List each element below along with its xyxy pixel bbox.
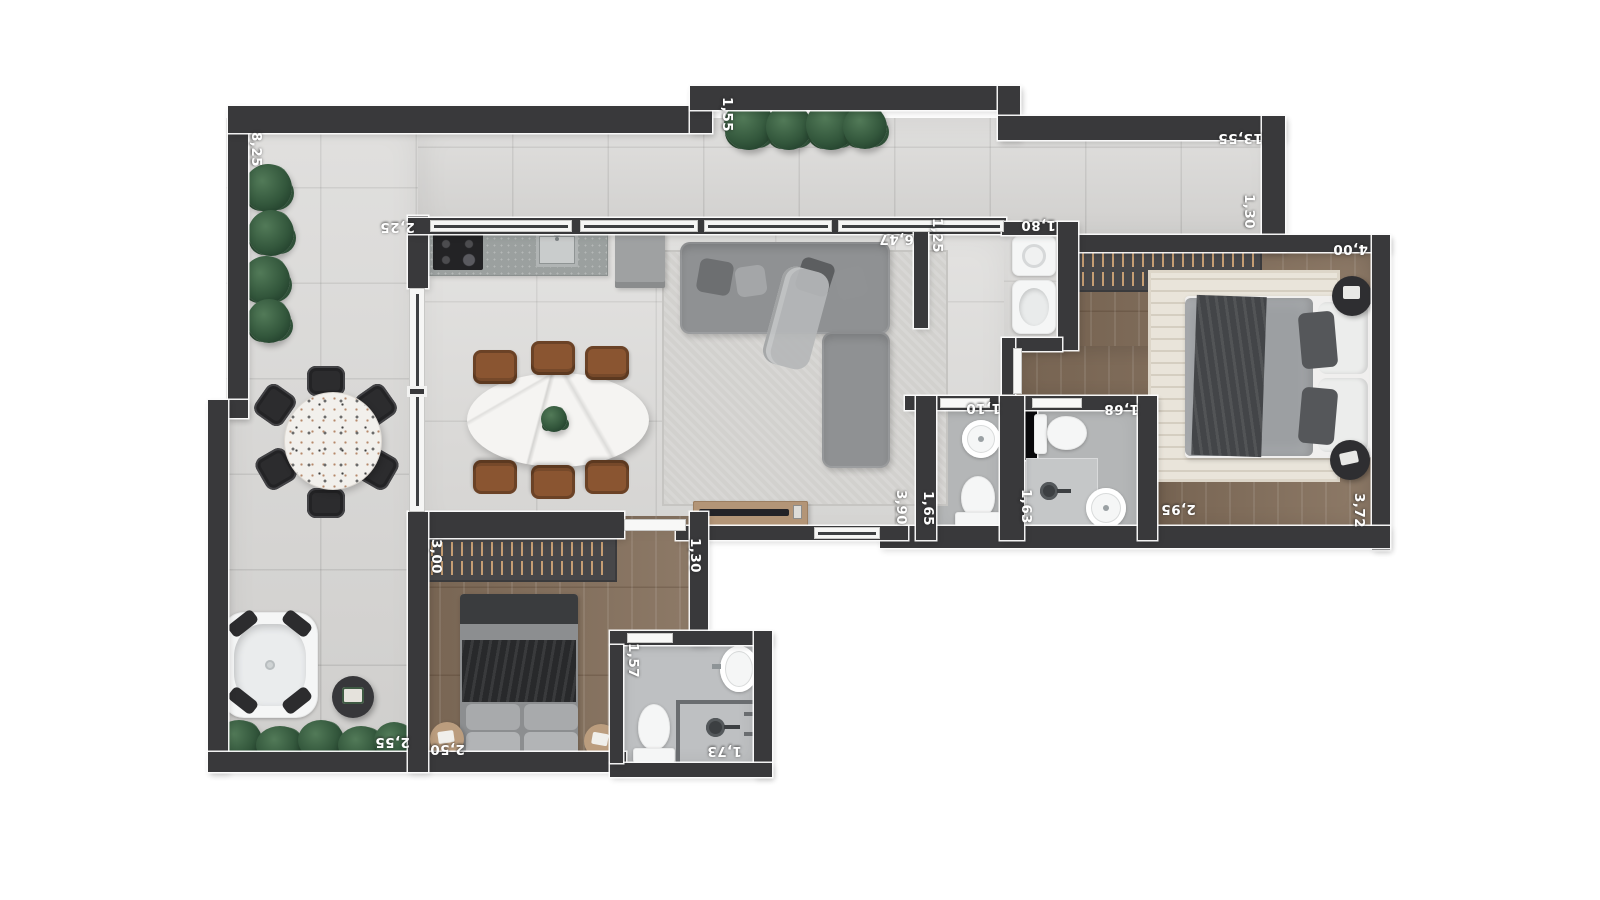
door-bathroom-3 — [627, 633, 673, 643]
dim-label: 8,25 — [248, 132, 264, 167]
wall-left-lower — [208, 400, 228, 772]
dim-label: 4,00 — [1333, 241, 1368, 257]
dim-label: 1,30 — [687, 538, 703, 573]
plant-icon — [248, 210, 294, 256]
wardrobe-hangers-icon — [431, 561, 611, 575]
dim-label: 2,95 — [1161, 501, 1196, 517]
sink-drain-icon — [1103, 505, 1109, 511]
shower-head-icon — [706, 718, 725, 737]
shower-arm-icon — [724, 725, 740, 729]
sofa-chaise — [822, 332, 890, 468]
bed-1-accent-pillow — [1298, 311, 1339, 370]
wall-right-upper — [1262, 116, 1285, 252]
window-glass-line — [584, 225, 694, 228]
refrigerator — [615, 232, 665, 288]
bed-2-pillow — [466, 704, 520, 730]
shower-tray — [1026, 458, 1098, 532]
window — [430, 220, 572, 232]
wall-bathroom-3-left — [610, 645, 623, 763]
bed-2-pillow — [524, 704, 578, 730]
sofa-pillow — [695, 257, 734, 296]
shower-drain-icon — [1040, 482, 1058, 500]
shower-arm-icon — [1057, 489, 1071, 493]
dim-label: 2,55 — [375, 734, 410, 750]
window-glass-line — [842, 225, 1000, 228]
door-bedroom-2 — [624, 519, 686, 531]
sink-drain-icon — [978, 436, 984, 442]
door-bathroom-2 — [1032, 398, 1082, 408]
sofa-pillow — [734, 264, 768, 298]
faucet-icon — [712, 664, 721, 669]
hot-tub-drain — [265, 660, 275, 670]
dim-label: 3,72 — [1351, 493, 1367, 528]
dim-label: 3,00 — [428, 539, 444, 574]
window-glass-line — [434, 225, 568, 228]
window — [814, 527, 880, 539]
door-glass-line — [416, 294, 419, 506]
dining-chair — [531, 465, 575, 499]
window-glass-line — [708, 225, 828, 228]
window-glass-line — [818, 532, 876, 535]
dim-label: 6,47 — [879, 231, 914, 247]
dim-label: 1,73 — [707, 743, 742, 759]
shower-handle-icon — [744, 712, 753, 716]
plant-icon — [843, 105, 887, 149]
wall-bathroom-2-right — [1138, 396, 1157, 540]
bed-2-throw — [462, 640, 576, 702]
shower-partition — [676, 700, 756, 704]
door-handle-icon — [407, 386, 427, 397]
side-table-tray — [342, 687, 364, 704]
bed-2-headboard — [460, 594, 578, 624]
table-plant-icon — [541, 406, 567, 432]
washer-door-icon — [1022, 244, 1046, 268]
dim-label: 1,10 — [966, 400, 1001, 416]
shower-handle-icon — [744, 732, 753, 736]
shower-partition — [676, 700, 680, 764]
bed-1-throw — [1191, 295, 1267, 457]
dim-label: 1,55 — [719, 97, 735, 132]
dim-label: 3,90 — [893, 490, 909, 525]
dim-label: 13,55 — [1218, 130, 1263, 146]
sliding-glass-door — [409, 288, 425, 512]
toilet-tank — [633, 748, 675, 763]
dining-chair — [585, 346, 629, 380]
wall-bottom-right — [880, 526, 1390, 548]
terrace-chair — [307, 488, 345, 518]
wall-top — [228, 106, 712, 133]
toilet-tank — [1034, 414, 1047, 454]
dim-label: 1,65 — [920, 491, 936, 526]
stove — [433, 234, 483, 270]
nightstand-decor — [1343, 286, 1360, 299]
toilet-tank — [955, 512, 1001, 527]
plant-icon — [247, 299, 291, 343]
wall-bedroom-2-top — [408, 512, 624, 538]
wall-living-right — [914, 222, 928, 328]
bed-1-accent-pillow — [1298, 387, 1339, 446]
window — [580, 220, 698, 232]
nightstand-decor — [591, 732, 609, 747]
window — [704, 220, 832, 232]
dim-label: 1,25 — [929, 218, 945, 253]
tv-decor — [793, 505, 802, 519]
plant-icon — [242, 256, 290, 304]
dim-label: 1,68 — [1104, 401, 1139, 417]
wardrobe-hangers-icon — [431, 542, 611, 556]
wardrobe-hangers-icon — [1082, 253, 1256, 267]
wall-bathroom-3-bottom — [610, 763, 772, 777]
wall-bedroom-1-right — [1372, 235, 1390, 550]
toilet — [1047, 416, 1087, 450]
dining-chair — [473, 460, 517, 494]
toilet — [638, 704, 670, 750]
window — [838, 220, 1004, 232]
wall-bedroom-2-left — [408, 512, 428, 772]
dim-label: 1,63 — [1018, 489, 1034, 524]
wall-bathroom-3-right — [754, 631, 772, 777]
wall-left-upper — [228, 106, 248, 418]
dining-chair — [531, 341, 575, 375]
dim-label: 1,30 — [1241, 194, 1257, 229]
kitchen-sink — [536, 233, 578, 267]
dim-label: 1,80 — [1021, 217, 1056, 233]
terrace-table — [284, 392, 382, 490]
wall-bedroom-2-right — [690, 512, 708, 645]
floor-plan: 8,25 2,25 1,55 13,55 1,30 6,47 1,25 1,80… — [0, 0, 1600, 900]
bathroom-sink — [720, 646, 758, 692]
wall-laundry-right — [1058, 222, 1078, 350]
dim-label: 1,57 — [625, 643, 641, 678]
dim-label: 2,50 — [430, 741, 465, 757]
door-bedroom-1 — [1013, 348, 1022, 394]
wall-top-notch — [690, 86, 1020, 110]
dining-chair — [585, 460, 629, 494]
dining-chair — [473, 350, 517, 384]
plant-icon — [244, 164, 292, 212]
tv — [699, 509, 789, 516]
dim-label: 2,25 — [380, 219, 415, 235]
laundry-sink-basin — [1019, 288, 1049, 326]
